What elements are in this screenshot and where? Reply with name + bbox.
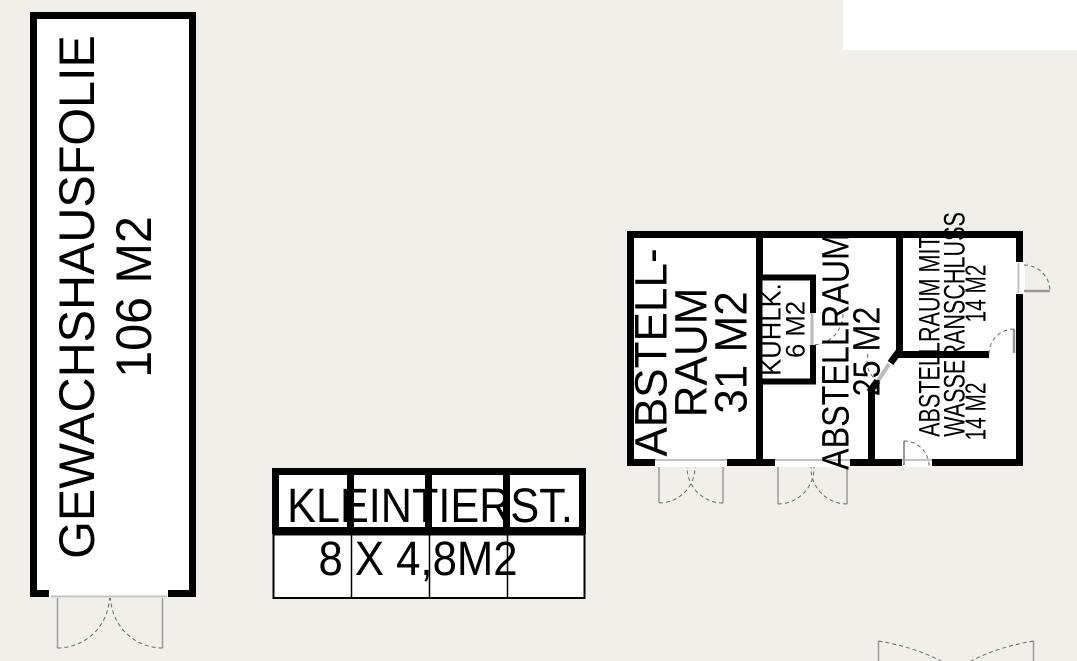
storage-room-left-label: ABSTELL- RAUM 31 M2	[632, 235, 753, 470]
floor-plan-canvas: GEWACHSHAUSFOLIE 106 M2 KLEINTIERST. 8 X…	[0, 0, 1077, 661]
cooling-room-label: KÜHLK. 6 M2	[761, 277, 808, 382]
greenhouse-double-door	[49, 587, 168, 648]
water-room-lower-area-label: 14 M2	[964, 379, 991, 444]
water-room-upper-area-label: 14 M2	[964, 261, 991, 326]
shed-name-label: KLEINTIERST.	[282, 482, 579, 532]
right-wall-door	[1014, 262, 1050, 294]
shed-size-label: 8 X 4,8M2	[277, 535, 559, 585]
greenhouse-area: 106 M2	[106, 16, 163, 579]
white-patch	[843, 0, 1077, 50]
greenhouse-label: GEWACHSHAUSFOLIE 106 M2	[49, 16, 163, 579]
storage-room-middle-label: ABSTELLRAUM 25 M2	[822, 224, 885, 479]
bottom-edge-partial-door	[879, 641, 1034, 661]
greenhouse-name: GEWACHSHAUSFOLIE	[49, 16, 106, 579]
